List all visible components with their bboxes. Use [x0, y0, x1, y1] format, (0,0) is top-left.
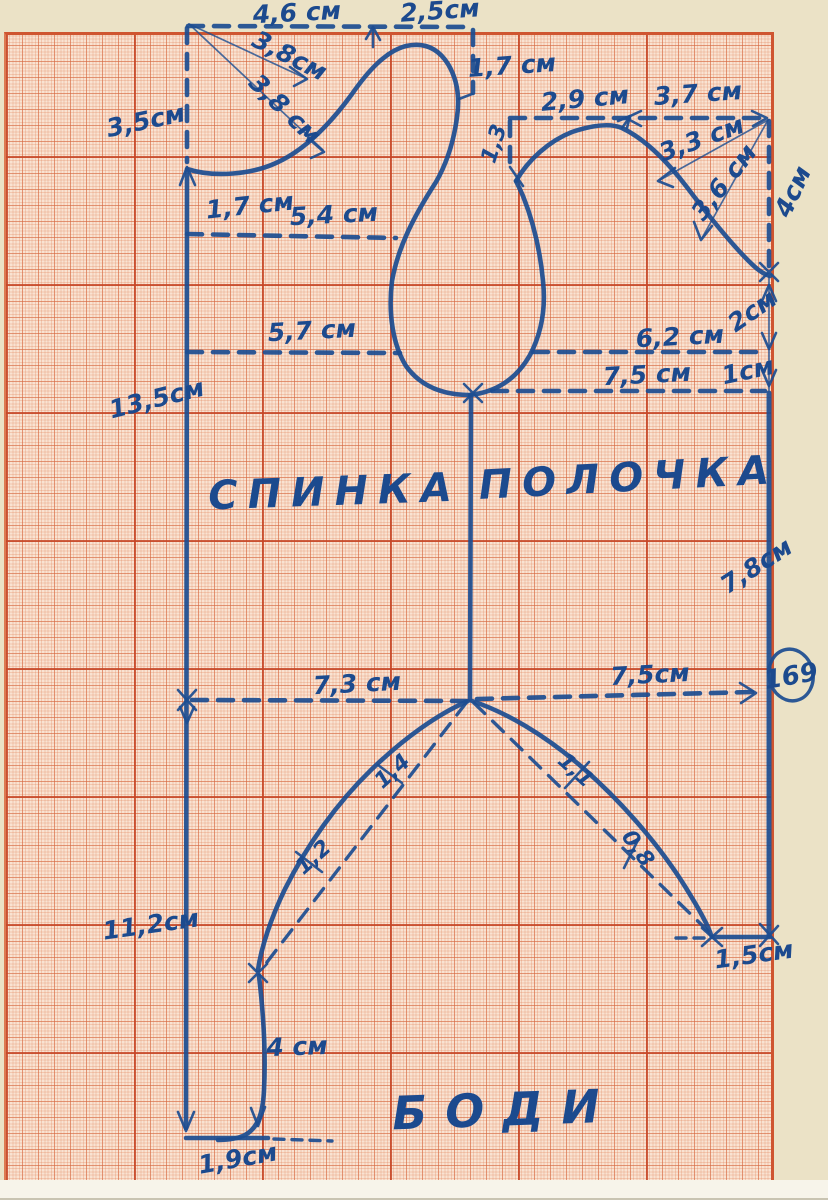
back-inner-leg-line: [218, 976, 265, 1140]
front-neck-drop-label: 1,3: [477, 121, 513, 166]
back-leg-dashed-chord: [261, 703, 466, 970]
back-chest-dashed-line: [187, 234, 396, 238]
back-shoulder-drop-label: 1,7 см: [204, 186, 295, 224]
front-hip-line-label: 7,5 см: [602, 358, 692, 392]
back-top-dashed-line: [188, 26, 472, 27]
front-waist-dashed-line: [477, 692, 752, 699]
leg-curves: [218, 701, 711, 1140]
back-leg-gap-lower-label: 1,2: [291, 835, 337, 880]
back-piece-title: СПИНКА: [207, 465, 462, 520]
back-bust-dashed-line: [187, 352, 400, 353]
front-leg-dashed-chord: [474, 703, 710, 933]
back-bust-line-label: 5,7 см: [267, 314, 357, 348]
back-side-top-label: 3,5см: [104, 98, 188, 143]
back-center-edge: [186, 172, 187, 1128]
front-piece-title: ПОЛОЧКА: [478, 447, 781, 509]
front-neck-edge: [470, 181, 544, 395]
front-piece-outline: [470, 125, 770, 938]
back-bottom-dashed-extension: [274, 1139, 332, 1141]
arrow-icon: [658, 168, 675, 187]
front-armhole-depth-label: 4см: [768, 161, 817, 222]
pattern-drawing: 169 4,6 см 2,5см 3,8см 3,8 см 3,5см 1,7 …: [0, 0, 828, 1200]
back-waist-line-label: 7,3 см: [312, 667, 402, 701]
back-neck-drop-label: 1,7 см: [467, 48, 557, 83]
back-top-width-right-label: 2,5см: [399, 0, 480, 28]
back-leg-inner-label: 4 см: [265, 1031, 328, 1062]
garment-title: БОДИ: [391, 1079, 618, 1141]
front-bust-line-label: 6,2 см: [635, 320, 725, 354]
back-side-length-label: 13,5см: [106, 373, 207, 425]
back-bottom-width-label: 1,9см: [196, 1137, 279, 1179]
back-top-width-left-label: 4,6 см: [251, 0, 342, 29]
center-front-line: [470, 396, 471, 699]
graph-paper-page: 169 4,6 см 2,5см 3,8см 3,8 см 3,5см 1,7 …: [0, 0, 828, 1200]
back-leg-gap-upper-label: 1,4: [370, 749, 416, 794]
measurement-labels: 4,6 см 2,5см 3,8см 3,8 см 3,5см 1,7 см 1…: [101, 0, 817, 1180]
front-leg-bottom-label: 1,5см: [712, 935, 795, 975]
markers: [178, 111, 778, 982]
front-top-width-right-label: 3,7 см: [653, 76, 743, 111]
front-top-width-left-label: 2,9 см: [540, 80, 630, 117]
front-side-length-label: 7,8см: [715, 532, 798, 600]
neck-drop-tick: [459, 94, 472, 99]
back-waist-dashed-line: [192, 700, 466, 701]
back-chest-line-label: 5,4 см: [289, 198, 379, 232]
front-leg-gap-lower-label: 0,8: [616, 826, 659, 872]
front-waist-line-label: 7,5см: [609, 658, 690, 691]
